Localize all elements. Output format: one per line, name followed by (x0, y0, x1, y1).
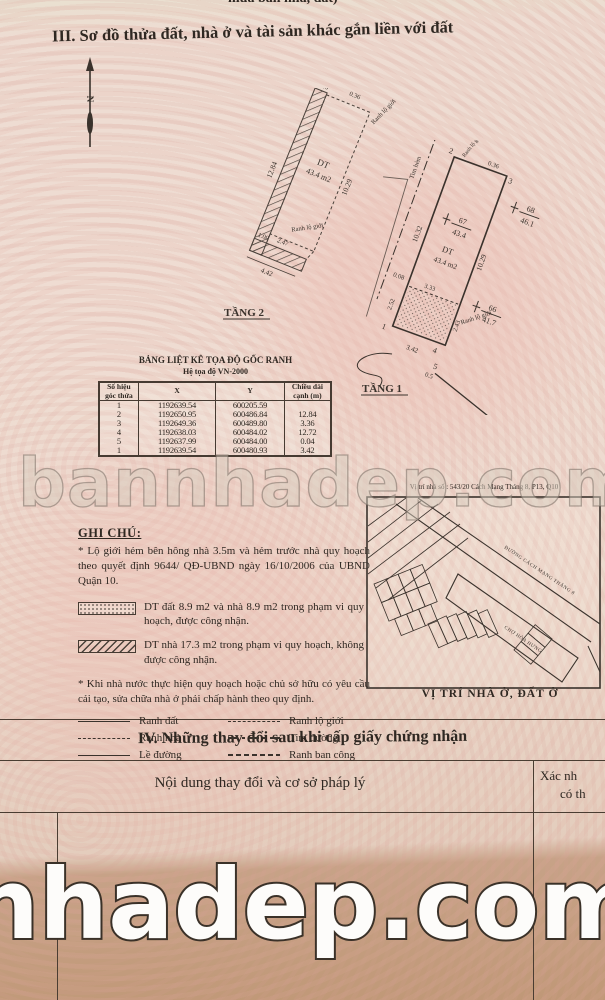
map-caption: VỊ TRÍ NHÀ Ở, ĐẤT Ở (400, 688, 580, 700)
p1-dim-corner5: 0.5 (424, 371, 434, 380)
line-legend: Ranh đất Ranh lộ giới Ranh nhà Tim đường… (78, 713, 370, 764)
p1-corner-5: 5 (432, 362, 439, 372)
p1-dim-bottom: 3.42 (405, 343, 420, 355)
hatch-legend-item: DT đất 8.9 m2 và nhà 8.9 m2 trong phạm v… (78, 600, 370, 630)
line-sample-solid-icon (78, 721, 130, 722)
hatch-item-text: DT đất 8.9 m2 và nhà 8.9 m2 trong phạm v… (144, 600, 364, 630)
svg-text:43.4: 43.4 (451, 227, 467, 240)
coord-header-row: Số hiệu góc thửa X Y Chiều dài cạnh (m) (99, 382, 331, 401)
p2-area-value: 43.4 m2 (305, 166, 333, 184)
section4-col2-header-line1: Xác nh (540, 768, 577, 784)
p1-corner-3: 3 (507, 176, 514, 186)
legend-label: Ranh lộ giới (289, 715, 344, 727)
line-sample-dashdot-icon (228, 737, 280, 739)
p1-area-label: DT (441, 244, 456, 258)
p1-mark-67: 67 43.4 (438, 210, 475, 241)
p2-dim-topright: 0.36 (348, 91, 362, 102)
stipple-swatch-icon (78, 602, 136, 615)
north-arrow-icon: N (74, 55, 106, 155)
col-so-hieu: Số hiệu góc thửa (99, 382, 138, 401)
section4-col2-header-line2: có th (560, 786, 586, 802)
table-row: 1 1192639.54 600205.59 (99, 401, 331, 411)
map-title: Vị trí nhà số : 543/20 Cách Mạng Tháng 8… (368, 483, 600, 491)
section4-col1-header: Nội dung thay đổi và cơ sở pháp lý (60, 775, 460, 792)
legend-item: Ranh đất (78, 713, 228, 730)
table-row: 5 1192637.99 600484.00 0.04 (99, 437, 331, 446)
note-2: * Khi nhà nước thực hiện quy hoạch hoặc … (78, 677, 370, 707)
col-x: X (138, 382, 215, 401)
col-y: Y (216, 382, 285, 401)
p2-dim-bottom: 4.42 (259, 266, 274, 278)
line-sample-dense-dash-icon (228, 754, 280, 756)
legend-item: Ranh ban công (228, 747, 378, 764)
p2-dim-innerb: 2.47 (276, 237, 290, 248)
notes-heading: GHI CHÚ: (78, 526, 370, 541)
p2-dim-left: 12.84 (264, 160, 279, 179)
legend-item: Ranh nhà (78, 730, 228, 747)
hatch-swatch-icon (78, 640, 136, 653)
p1-corner-2: 2 (448, 146, 455, 156)
p1-floor-label: TẦNG 1 (362, 382, 402, 395)
line-sample-dashed-icon (228, 721, 280, 722)
legend-label: Lề đường (139, 749, 182, 761)
p2-edge-label-top: Ranh lộ giới (370, 98, 398, 126)
legend-label: Ranh ban công (289, 749, 355, 761)
p1-corner-1: 1 (381, 322, 388, 332)
svg-text:N: N (85, 96, 95, 103)
p2-area-label: DT (316, 157, 331, 171)
p1-mark-68: 68 46.1 (506, 199, 543, 230)
legend-label: Tim đường (289, 732, 338, 744)
p1-dim-left3: 2.52 (386, 298, 396, 311)
legend-item: Lề đường (78, 747, 228, 764)
p1-dim-left: 10.32 (410, 224, 424, 243)
svg-text:67: 67 (457, 216, 468, 227)
legend-label: Ranh nhà (139, 732, 181, 744)
hatch-item-text: DT nhà 17.3 m2 trong phạm vi quy hoạch, … (144, 638, 364, 668)
legend-label: Ranh đất (139, 715, 178, 727)
p1-edge-label-top: Ranh lộ giới (461, 140, 483, 159)
notes-block: GHI CHÚ: * Lộ giới hẻm bên hông nhà 3.5m… (78, 526, 370, 764)
line-sample-dashed-icon (78, 738, 130, 739)
legend-item: Tim đường (228, 730, 378, 747)
location-map: ĐƯỜNG CÁCH MẠNG THÁNG 8 CHỢ HÒA HƯNG (366, 496, 602, 690)
line-sample-solid-icon (78, 755, 130, 756)
legend-item: Ranh lộ giới (228, 713, 378, 730)
table-row: 1 1192639.54 600480.93 3.42 (99, 446, 331, 456)
hatch-legend-item: DT nhà 17.3 m2 trong phạm vi quy hoạch, … (78, 638, 370, 668)
svg-text:46.1: 46.1 (519, 216, 535, 229)
svg-text:68: 68 (525, 204, 536, 215)
coord-table-title: BẢNG LIỆT KÊ TỌA ĐỘ GỐC RANH (98, 355, 333, 365)
coordinate-table: Số hiệu góc thửa X Y Chiều dài cạnh (m) … (98, 381, 332, 457)
p1-corner-4: 4 (431, 346, 438, 356)
coord-table-subtitle: Hệ tọa độ VN-2000 (98, 367, 333, 376)
p1-tim-hem: Tim hẻm (408, 155, 423, 179)
p2-edge-label-mid: Ranh lộ giới (291, 222, 324, 233)
clipped-top-text: mua bán nhà, đất) (228, 0, 338, 7)
note-1: * Lộ giới hẻm bên hông nhà 3.5m và hẻm t… (78, 544, 370, 589)
p1-dim-right: 10.29 (474, 253, 488, 272)
p1-dim-top: 1.75 (445, 140, 458, 142)
section3-title: III. Sơ đồ thửa đất, nhà ở và tài sản kh… (52, 16, 532, 47)
p1-dim-left2: 0.08 (392, 271, 405, 281)
p2-floor-label: TẦNG 2 (224, 306, 265, 319)
scanned-certificate-page: { "page": { "top_clipped_text": "mua bán… (0, 0, 605, 1000)
watermark-bottom: nhadep.com (0, 848, 605, 961)
table-row: 3 1192649.36 600489.80 3.36 (99, 419, 331, 428)
floorplan-tang1: Tim hẻm 1.75 Ranh lộ giới 2 3 1 4 5 0.36… (352, 140, 572, 415)
p1-area-value: 43.4 m2 (432, 254, 458, 271)
col-chieu-dai: Chiều dài cạnh (m) (284, 382, 331, 401)
table-row: 4 1192638.03 600484.02 12.72 (99, 428, 331, 437)
table-row: 2 1192650.95 600486.84 12.84 (99, 410, 331, 419)
